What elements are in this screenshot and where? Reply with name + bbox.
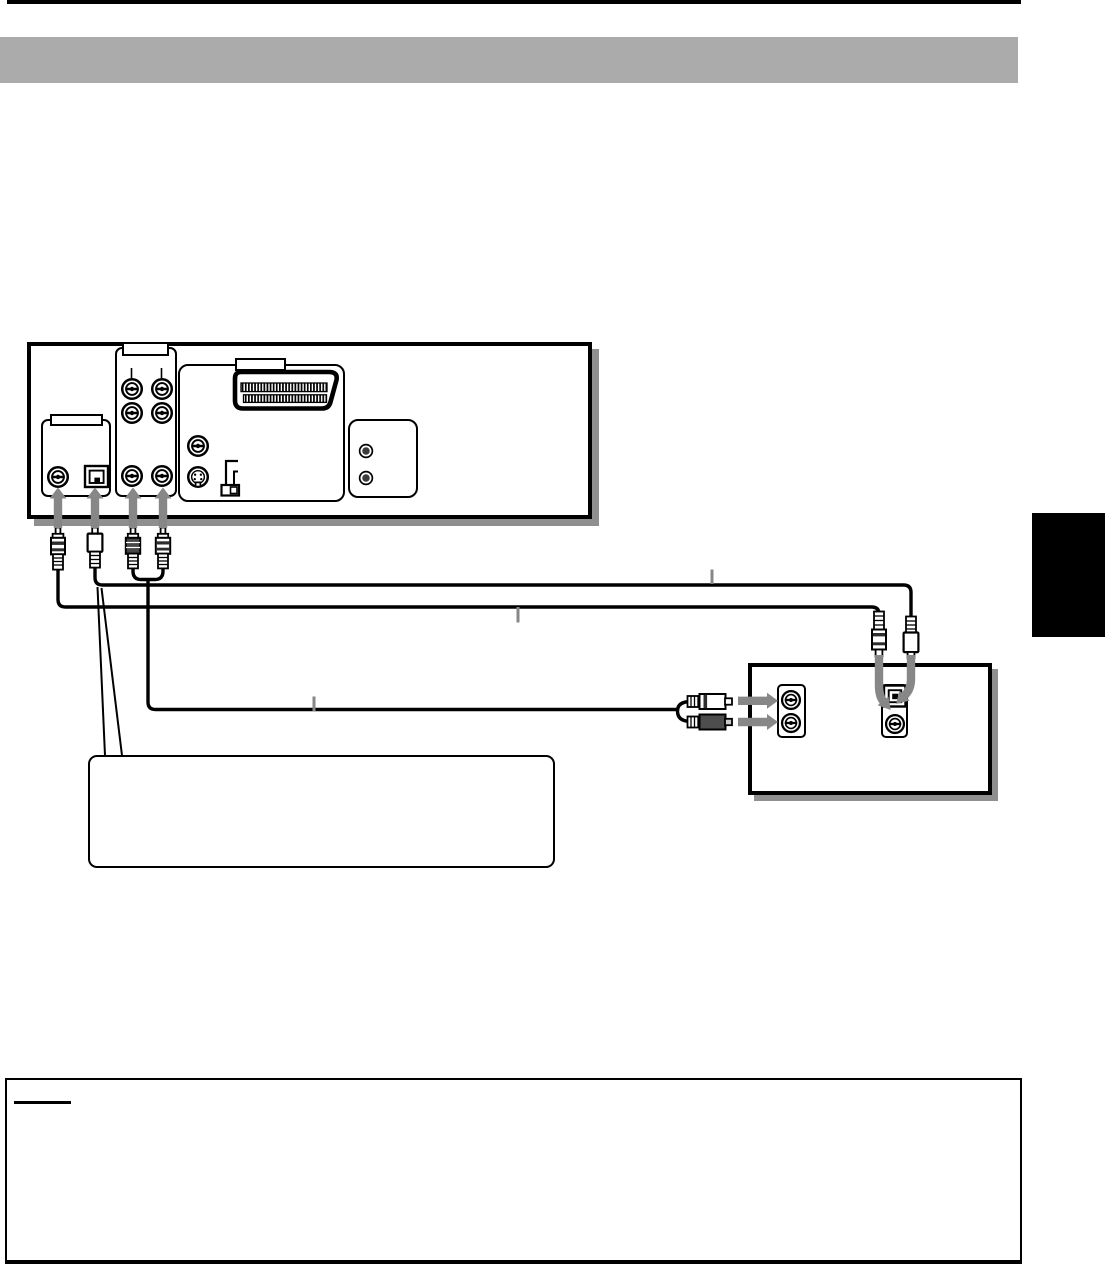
notes-box <box>5 1078 1022 1264</box>
audio-plug-up-white <box>156 528 170 569</box>
audio-plug-up-red <box>126 528 140 569</box>
coaxial-plug-up <box>51 528 65 570</box>
cable-label-ticks <box>314 570 712 712</box>
audio-plug-right-white <box>688 694 733 709</box>
manual-page <box>0 0 1105 1267</box>
amp-audio-in-group <box>777 684 806 738</box>
optical-plug-down <box>904 617 919 659</box>
header-band <box>0 37 1018 83</box>
notes-heading-underline <box>14 1101 71 1104</box>
callout-box <box>88 755 555 868</box>
callout-leader-lines <box>98 587 123 756</box>
coaxial-plug-down <box>872 612 886 657</box>
audio-out-label-box <box>122 342 169 356</box>
optical-plug-up <box>88 528 103 568</box>
digital-out-label-box <box>50 414 103 426</box>
stereo-audio-cable <box>133 564 691 722</box>
coaxial-digital-cable <box>58 568 879 614</box>
optical-digital-cable <box>95 566 911 617</box>
audio-out-group <box>115 347 177 497</box>
notes-heading <box>16 1088 76 1101</box>
aux-group <box>348 419 418 498</box>
section-side-tab <box>1032 513 1105 637</box>
digital-out-group <box>41 419 111 497</box>
audio-plug-right-red <box>688 715 733 730</box>
scart-group <box>178 364 345 502</box>
amp-digital-in-group <box>881 684 908 738</box>
scart-label-box <box>235 358 286 371</box>
top-rule <box>7 0 1021 4</box>
diagram-overlay <box>0 0 1105 1267</box>
